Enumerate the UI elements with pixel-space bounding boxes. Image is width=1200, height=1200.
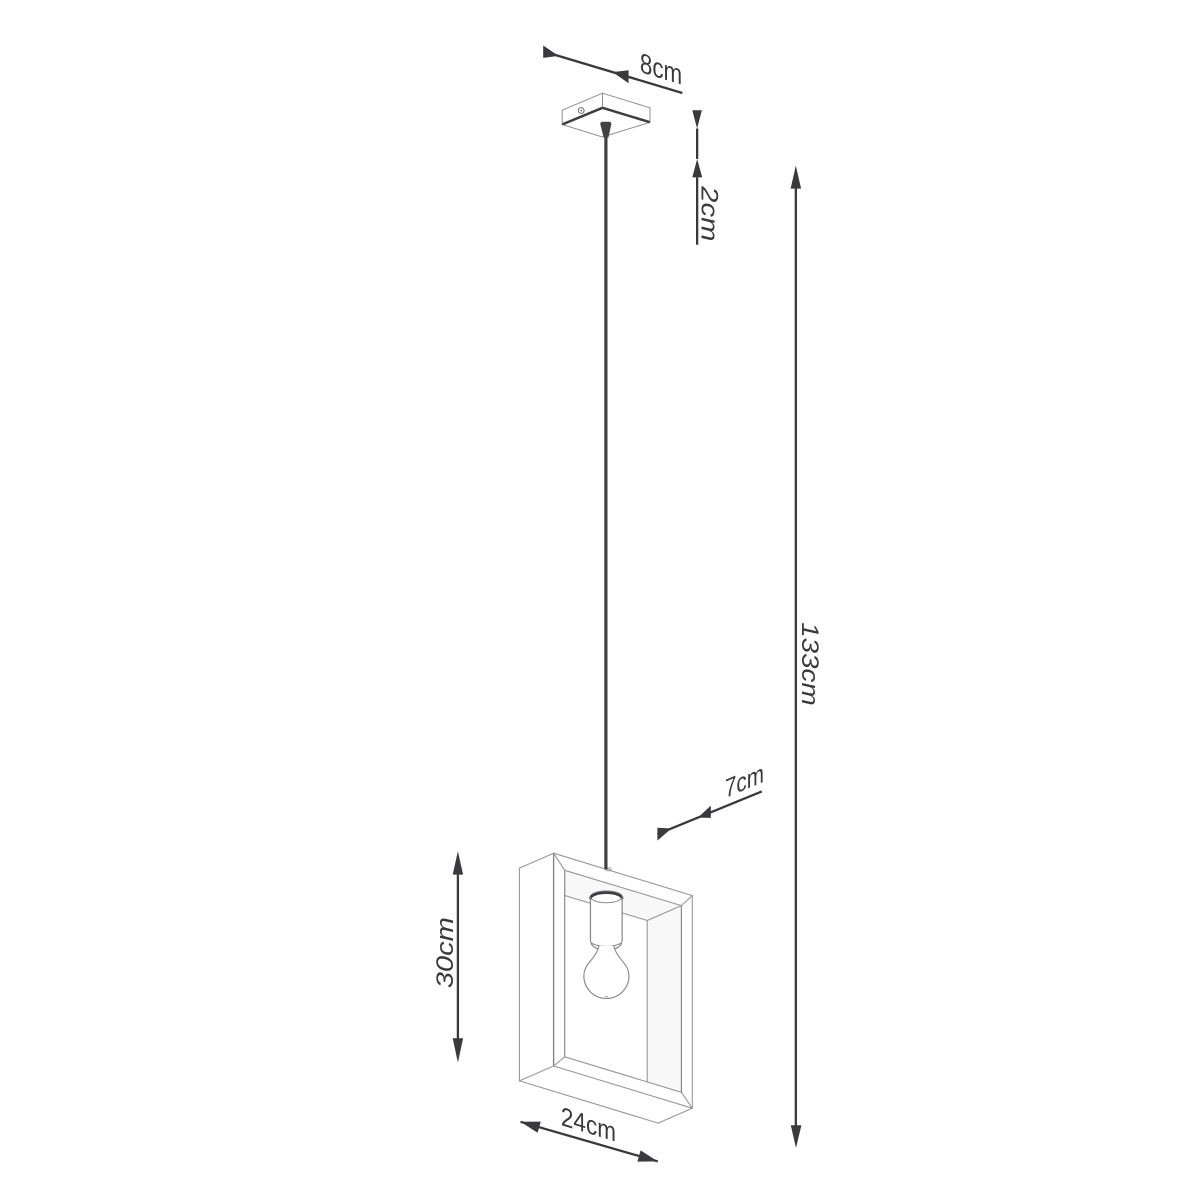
- svg-text:2cm: 2cm: [696, 185, 723, 241]
- svg-text:8cm: 8cm: [640, 48, 682, 91]
- svg-text:30cm: 30cm: [431, 917, 458, 988]
- svg-text:133cm: 133cm: [796, 622, 822, 705]
